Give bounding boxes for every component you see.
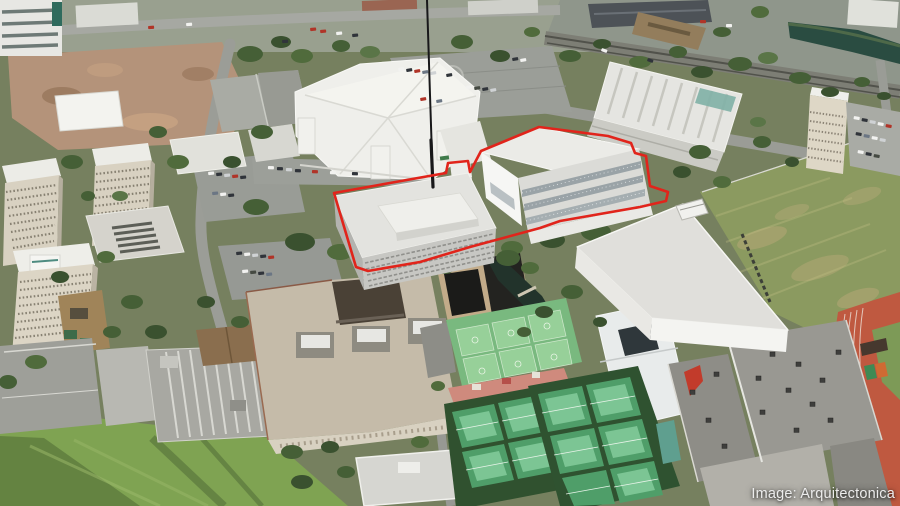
tree-canopy xyxy=(713,27,731,37)
rooftop-hvac-unit xyxy=(756,376,761,380)
tree-canopy xyxy=(97,251,115,263)
compound-shed xyxy=(70,308,88,319)
basketball-court xyxy=(535,339,572,370)
tree-canopy xyxy=(689,145,711,159)
white-flat-building xyxy=(55,91,123,131)
parked-car xyxy=(216,172,222,176)
garage-glass-core xyxy=(52,2,62,26)
tree-canopy xyxy=(713,176,731,188)
tree-canopy xyxy=(669,46,687,58)
rooftop-hvac-unit xyxy=(836,350,841,354)
tree-canopy xyxy=(758,52,778,64)
tree-canopy xyxy=(593,317,607,327)
tree-canopy xyxy=(521,262,539,274)
parked-car xyxy=(232,174,238,178)
tree-canopy xyxy=(243,199,269,215)
parked-car xyxy=(330,171,336,174)
tree-canopy xyxy=(750,117,766,127)
tree-canopy xyxy=(237,46,263,62)
rooftop-box xyxy=(160,356,178,368)
rooftop-hvac-unit xyxy=(690,390,695,394)
rooftop-hvac-unit xyxy=(770,352,775,356)
parked-car xyxy=(286,168,292,171)
tree-canopy xyxy=(431,381,445,391)
parked-car xyxy=(266,272,272,276)
aerial-scene xyxy=(0,0,900,506)
parked-car xyxy=(250,270,256,274)
parked-car xyxy=(208,171,214,175)
basketball-court xyxy=(499,346,537,377)
deck-canopy xyxy=(472,384,481,390)
tree-canopy xyxy=(490,50,510,62)
parked-car xyxy=(212,191,218,195)
red-roof-strip xyxy=(362,0,417,11)
parked-car xyxy=(320,29,326,33)
tree-canopy xyxy=(789,72,811,84)
tree-canopy xyxy=(535,306,553,318)
image-credit: Image: Arquitectonica xyxy=(751,486,895,502)
garage-floor-band xyxy=(2,45,58,47)
rooftop-hvac-unit xyxy=(794,428,799,432)
garage-floor-band xyxy=(2,10,58,12)
parked-car xyxy=(260,254,266,258)
tree-canopy xyxy=(877,92,891,100)
parked-car xyxy=(220,192,226,196)
parked-car xyxy=(352,33,358,37)
tree-canopy xyxy=(332,40,350,52)
aerial-rendering: Image: Arquitectonica xyxy=(0,0,900,506)
crane-cable-tip xyxy=(431,140,433,187)
tree-canopy xyxy=(496,250,520,266)
parked-car xyxy=(244,252,250,256)
deck-canopy xyxy=(502,378,511,384)
tree-canopy xyxy=(854,77,870,87)
tree-canopy xyxy=(223,156,241,168)
dirt-patch xyxy=(182,67,214,81)
parked-car xyxy=(148,26,154,30)
tree-canopy xyxy=(753,136,771,148)
tree-canopy xyxy=(517,327,531,337)
parked-car xyxy=(258,271,264,275)
tree-canopy xyxy=(145,325,167,339)
rooftop-box xyxy=(398,462,420,473)
parked-car xyxy=(312,170,318,173)
tree-canopy xyxy=(291,49,313,63)
tree-canopy xyxy=(821,87,839,97)
basketball-court xyxy=(463,353,501,384)
rooftop-hvac-unit xyxy=(706,418,711,422)
tree-canopy xyxy=(61,155,83,169)
tree-canopy xyxy=(751,6,769,18)
garage-floor-band xyxy=(2,34,58,36)
tree-canopy xyxy=(629,56,651,68)
garage-floor-band xyxy=(2,22,58,24)
tree-canopy xyxy=(559,50,581,62)
deck-canopy xyxy=(532,372,540,378)
tree-canopy xyxy=(785,157,799,167)
tree-canopy xyxy=(524,27,540,37)
tree-canopy xyxy=(81,191,95,201)
parked-car xyxy=(700,20,706,23)
tree-canopy xyxy=(167,155,189,169)
parked-car xyxy=(295,169,301,172)
parked-car xyxy=(336,31,342,35)
rooftop-hvac-unit xyxy=(760,410,765,414)
rooftop-box xyxy=(230,400,246,411)
parked-car xyxy=(310,27,316,31)
tree-canopy xyxy=(103,326,121,338)
rooftop-topleft xyxy=(75,2,138,27)
tree-canopy xyxy=(25,355,47,369)
tree-canopy xyxy=(149,126,167,138)
dirt-patch xyxy=(87,63,123,77)
rooftop-topcenter xyxy=(468,0,538,15)
tree-canopy xyxy=(251,125,273,139)
rooftop-hvac-unit xyxy=(714,372,719,376)
rooftop-hvac-unit xyxy=(828,418,833,422)
rooftop-hvac-unit xyxy=(722,444,727,448)
tree-canopy xyxy=(691,66,713,78)
tree-canopy xyxy=(197,296,215,308)
tree-canopy xyxy=(231,316,249,328)
gym-skylight xyxy=(357,329,386,342)
parked-car xyxy=(186,23,192,27)
rooftop-hvac-unit xyxy=(786,388,791,392)
parked-car xyxy=(236,251,242,255)
parked-car xyxy=(282,40,288,44)
tree-canopy xyxy=(411,436,429,448)
parked-car xyxy=(268,255,274,259)
parked-car xyxy=(252,253,258,257)
parked-car xyxy=(268,166,274,169)
green-tarp xyxy=(64,330,77,339)
gym-skylight xyxy=(301,335,330,348)
tree-canopy xyxy=(673,166,691,178)
parked-car xyxy=(242,269,248,273)
tree-canopy xyxy=(281,445,303,459)
tree-canopy xyxy=(561,285,583,299)
parked-car xyxy=(726,24,732,27)
tree-canopy xyxy=(593,39,611,49)
rooftop-topright xyxy=(847,0,899,28)
rooftop-hvac-unit xyxy=(820,378,825,382)
parked-car xyxy=(352,172,358,175)
tree-canopy xyxy=(121,295,143,309)
parked-car xyxy=(277,167,283,170)
tree-canopy xyxy=(337,466,355,478)
tree-canopy xyxy=(112,191,128,201)
parked-car xyxy=(224,173,230,177)
tree-canopy xyxy=(728,57,752,71)
tree-canopy xyxy=(451,35,473,49)
dirt-patch xyxy=(122,113,178,131)
basketball-court xyxy=(456,324,494,356)
tree-canopy xyxy=(291,475,313,489)
parked-car xyxy=(228,193,234,197)
rooftop-hvac-unit xyxy=(796,362,801,366)
rooftop-hvac-unit xyxy=(810,402,815,406)
tree-canopy xyxy=(321,441,339,453)
parked-car xyxy=(240,175,246,179)
tree-canopy xyxy=(285,233,315,251)
tree-canopy xyxy=(51,271,69,283)
tree-canopy xyxy=(360,46,380,58)
arena-tower xyxy=(298,118,315,154)
